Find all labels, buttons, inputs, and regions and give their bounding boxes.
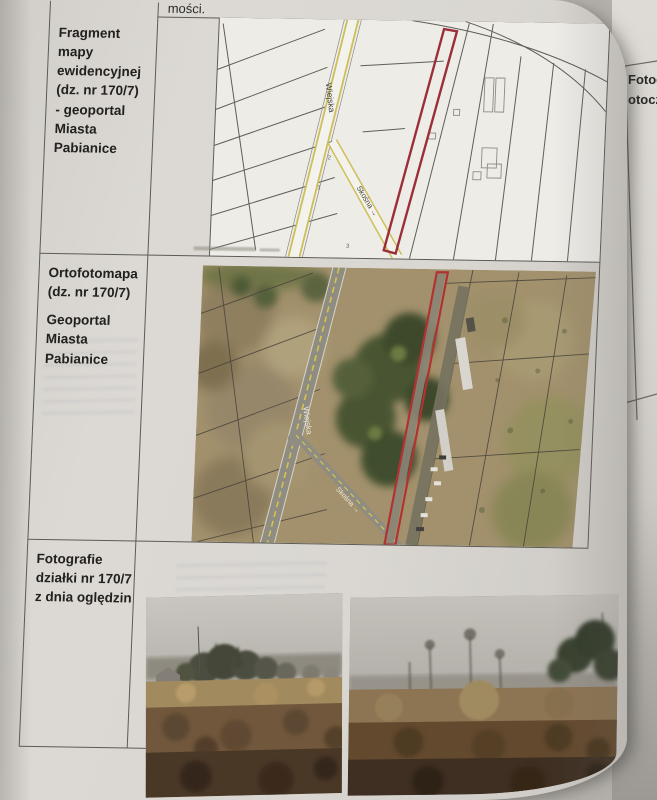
- row1-label-line: Fragment mapy: [57, 23, 156, 63]
- table-border-left: [19, 1, 51, 746]
- row1-label-line: Pabianice: [53, 138, 151, 159]
- site-photo-left: [146, 593, 343, 798]
- row3-label-line: Fotografie: [36, 549, 134, 570]
- photographed-document: Fotog otocz mości. Fragment mapy ewidenc…: [0, 0, 657, 800]
- row3-label-line: z dnia oględzin: [35, 587, 133, 608]
- row2-label-line: (dz. nr 170/7): [47, 282, 145, 303]
- row2-label-line: Pabianice: [45, 349, 143, 370]
- report-page: mości. Fragment mapy ewidencyjnej (dz. n…: [0, 0, 627, 800]
- row1-label-line: (dz. nr 170/7): [56, 80, 154, 101]
- next-page-heading-line1: Fotog: [628, 70, 657, 90]
- previous-row-fragment: mości.: [167, 1, 205, 17]
- row2-label: Ortofotomapa (dz. nr 170/7) Geoportal Mi…: [45, 263, 146, 369]
- orthophoto: Wiejska Skośna →: [135, 255, 599, 548]
- next-page-heading: Fotog otocz: [628, 70, 657, 109]
- row1-label-line: - geoportal: [55, 100, 153, 121]
- row2-label-line: Ortofotomapa: [48, 263, 146, 284]
- cadastral-map: Wiejska Skośna → 1 2 3: [147, 17, 609, 262]
- row1-label: Fragment mapy ewidencyjnej (dz. nr 170/7…: [53, 23, 156, 159]
- row3-label: Fotografie działki nr 170/7 z dnia oględ…: [35, 549, 134, 608]
- row1-label-line: Miasta: [54, 119, 152, 140]
- row3-label-line: działki nr 170/7: [35, 568, 133, 589]
- next-page-heading-line2: otocz: [628, 90, 657, 110]
- site-photo-right: [348, 595, 619, 796]
- table-area: mości. Fragment mapy ewidencyjnej (dz. n…: [0, 0, 627, 800]
- row1-label-line: ewidencyjnej: [57, 61, 155, 82]
- row2-label-line: Geoportal: [46, 310, 144, 331]
- row2-label-line: Miasta: [45, 329, 143, 350]
